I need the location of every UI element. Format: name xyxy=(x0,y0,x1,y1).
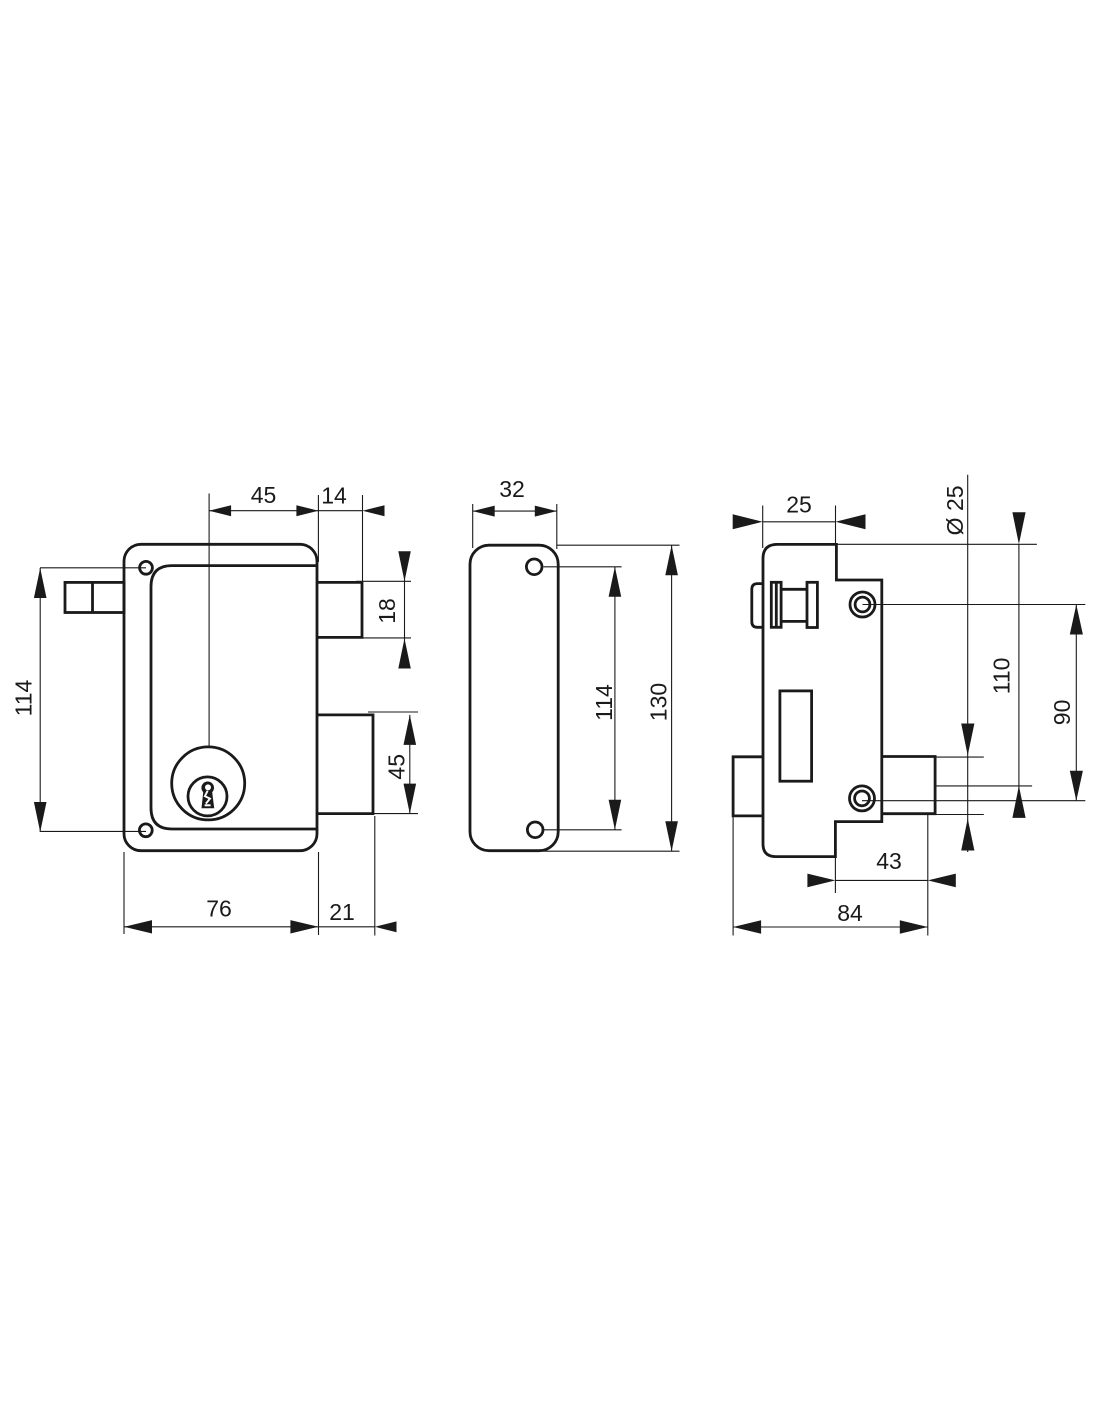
svg-text:Ø 25: Ø 25 xyxy=(942,485,968,535)
svg-text:114: 114 xyxy=(11,679,37,716)
svg-text:45: 45 xyxy=(251,482,277,508)
svg-text:76: 76 xyxy=(206,896,232,922)
svg-text:21: 21 xyxy=(329,899,355,925)
svg-text:43: 43 xyxy=(876,848,902,874)
svg-text:25: 25 xyxy=(786,492,812,518)
svg-text:114: 114 xyxy=(591,684,617,721)
svg-text:90: 90 xyxy=(1049,700,1075,726)
svg-text:32: 32 xyxy=(499,476,525,502)
svg-text:84: 84 xyxy=(837,900,863,926)
svg-text:130: 130 xyxy=(645,683,671,721)
svg-text:14: 14 xyxy=(321,483,347,509)
svg-text:18: 18 xyxy=(374,598,400,624)
svg-text:45: 45 xyxy=(384,754,410,780)
svg-text:110: 110 xyxy=(989,658,1015,695)
